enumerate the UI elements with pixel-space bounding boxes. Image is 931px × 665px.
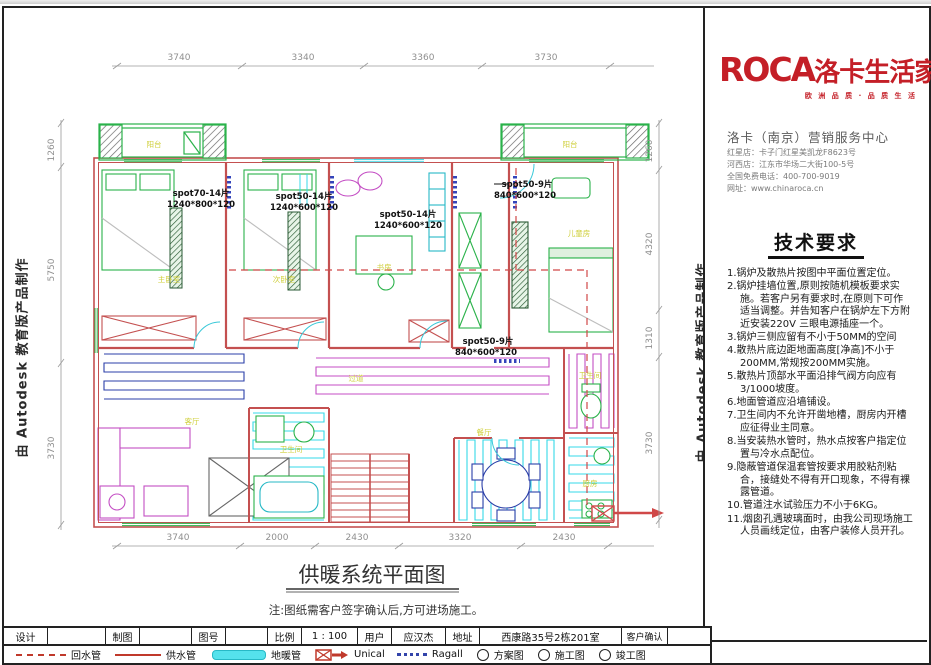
svg-text:1310: 1310: [645, 326, 655, 349]
sheet-no-value: [226, 628, 268, 644]
design-label: 设计: [4, 628, 48, 644]
tech-item: 10.管道注水试验压力不小于6KG。: [727, 500, 913, 512]
contact-line: 网址：www.chinaroca.cn: [727, 183, 917, 194]
svg-text:阳台: 阳台: [147, 139, 162, 149]
svg-text:spot70-14片: spot70-14片: [173, 188, 230, 199]
svg-text:840*600*120: 840*600*120: [455, 348, 517, 358]
tech-requirements: 技术要求 1.锅炉及散热片按图中平面位置定位。 2.锅炉挂墙位置,原则按随机模板…: [715, 228, 917, 539]
address-value: 西康路35号2栋201室: [480, 628, 622, 644]
svg-text:阳台: 阳台: [563, 139, 578, 149]
customer-confirm-value: [668, 628, 710, 644]
scale-label: 比例: [268, 628, 302, 644]
scheme-radio-circle: [477, 649, 489, 661]
draft-label: 制图: [106, 628, 140, 644]
legend-scheme-drawing: 方案图: [469, 647, 530, 662]
plan-title: 供暖系统平面图: [299, 563, 446, 587]
floor-heating-pipe-sample: [212, 650, 266, 660]
svg-text:3730: 3730: [645, 431, 655, 454]
right-panel: ROCA洛卡生活家 欧 洲 品 质 · 品 质 生 活 洛卡（南京）营销服务中心…: [703, 8, 927, 642]
completion-radio-circle: [599, 649, 611, 661]
tech-item: 9.隐蔽管道保温套管按要求用胶粘剂粘合，接缝处不得有开口现象，不得有裸露管道。: [727, 462, 913, 499]
svg-text:spot50-9片: spot50-9片: [463, 336, 514, 347]
svg-text:1260: 1260: [47, 138, 57, 161]
svg-text:1240*800*120: 1240*800*120: [167, 200, 235, 210]
svg-text:3740: 3740: [168, 53, 191, 63]
autodesk-watermark-icon: 由 Autodesk 教育版产品制作: [12, 233, 31, 483]
svg-text:1240*600*120: 1240*600*120: [374, 221, 442, 231]
svg-text:2000: 2000: [266, 533, 289, 543]
tech-requirements-list: 1.锅炉及散热片按图中平面位置定位。 2.锅炉挂墙位置,原则按随机模板要求实施。…: [715, 268, 917, 539]
staircase: [331, 454, 409, 522]
tech-requirements-title: 技术要求: [768, 228, 864, 259]
tech-item: 1.锅炉及散热片按图中平面位置定位。: [727, 268, 913, 280]
legend-return-pipe: 回水管: [4, 647, 107, 662]
tech-item: 5.散热片顶部水平面沿排气阀方向应有3/1000坡度。: [727, 371, 913, 396]
service-center-name: 洛卡（南京）营销服务中心: [727, 127, 917, 146]
svg-text:1260: 1260: [645, 139, 655, 162]
svg-text:1240*600*120: 1240*600*120: [270, 203, 338, 213]
svg-text:主卧室: 主卧室: [158, 274, 181, 284]
contact-block: 洛卡（南京）营销服务中心 红星店：卡子门红星美凯龙F8623号 河西店：江东市华…: [727, 127, 917, 194]
roca-logo: ROCA洛卡生活家: [719, 50, 917, 89]
floor-plan: 3740 3340 3360 3730 3740 2000 2430 3320 …: [4, 8, 707, 626]
tech-item: 6.地面管道应沿墙铺设。: [727, 397, 913, 409]
svg-text:餐厅: 餐厅: [477, 428, 492, 437]
svg-text:spot50-14片: spot50-14片: [380, 209, 437, 220]
tech-item: 3.锅炉三侧应留有不小于50MM的空间: [727, 332, 913, 344]
design-value: [48, 628, 106, 644]
drawing-title-block: 供暖系统平面图 注:图纸需客户签字确认后,方可进场施工。: [269, 563, 484, 617]
svg-text:3340: 3340: [292, 53, 315, 63]
supply-pipe-sample: [115, 654, 161, 656]
legend-ragall: Ragall: [391, 649, 469, 660]
svg-text:840*600*120: 840*600*120: [494, 191, 556, 201]
contact-line: 河西店：江东市华场二大街100-5号: [727, 159, 917, 170]
plan-note: 注:图纸需客户签字确认后,方可进场施工。: [269, 603, 484, 617]
contact-line: 红星店：卡子门红星美凯龙F8623号: [727, 147, 917, 158]
ragall-sample: [397, 653, 427, 656]
svg-text:2430: 2430: [346, 533, 369, 543]
scale-value: 1 : 100: [302, 628, 358, 644]
window-top-edge: [0, 0, 931, 4]
legend-floor-heating-pipe: 地暖管: [202, 647, 307, 662]
tech-item: 8.当安装热水管时，热水点按客户指定位置与冷水点配位。: [727, 436, 913, 461]
svg-text:3740: 3740: [167, 533, 190, 543]
legend-completion-drawing: 竣工图: [591, 647, 652, 662]
brand-block: ROCA洛卡生活家 欧 洲 品 质 · 品 质 生 活: [719, 50, 917, 101]
svg-text:过道: 过道: [349, 373, 364, 383]
construction-radio-circle: [538, 649, 550, 661]
svg-text:厨房: 厨房: [583, 478, 598, 488]
address-label: 地址: [446, 628, 480, 644]
roca-logo-latin: ROCA: [719, 50, 814, 89]
screen: ✕: [0, 0, 931, 665]
return-pipe-sample: [16, 654, 66, 656]
svg-text:客厅: 客厅: [185, 416, 200, 426]
svg-text:儿童房: 儿童房: [568, 228, 591, 238]
unical-icon: [315, 649, 349, 661]
svg-text:5750: 5750: [47, 258, 57, 281]
legend-row: 回水管 供水管 地暖管 Unical: [4, 646, 712, 663]
draft-value: [140, 628, 192, 644]
tech-item: 7.卫生间内不允许开凿地槽，厨房内开槽应征得业主同意。: [727, 410, 913, 435]
svg-text:3320: 3320: [449, 533, 472, 543]
roca-logo-cn: 洛卡生活家: [814, 58, 931, 88]
legend-construction-drawing: 施工图: [530, 647, 591, 662]
svg-text:3360: 3360: [412, 53, 435, 63]
contact-line: 全国免费电话：400-700-9019: [727, 171, 917, 182]
svg-text:4320: 4320: [645, 232, 655, 255]
svg-text:3730: 3730: [535, 53, 558, 63]
title-block-table: 设计 制图 图号 比例 1 : 100 用户 应汉杰 地址 西康路35号2栋20…: [4, 626, 712, 646]
customer-confirm-label: 客户确认: [622, 628, 668, 644]
sheet-no-label: 图号: [192, 628, 226, 644]
tech-item: 11.烟囱孔遇玻璃面时，由我公司现场施工人员画线定位，由客户装修人员开孔。: [727, 514, 913, 539]
svg-text:书房: 书房: [377, 262, 392, 272]
user-value: 应汉杰: [392, 628, 446, 644]
tech-item: 4.散热片底边距地面高度[净高]不小于200MM,常规按200MM实施。: [727, 345, 913, 370]
svg-text:卫生间: 卫生间: [579, 370, 602, 380]
svg-text:2430: 2430: [553, 533, 576, 543]
svg-text:spot50-9片: spot50-9片: [502, 179, 553, 190]
legend-unical: Unical: [307, 649, 391, 661]
svg-text:spot50-14片: spot50-14片: [276, 191, 333, 202]
svg-text:次卧室: 次卧室: [273, 274, 296, 284]
svg-text:卫生间: 卫生间: [280, 444, 303, 454]
legend-supply-pipe: 供水管: [107, 647, 202, 662]
tech-item: 2.锅炉挂墙位置,原则按随机模板要求实施。若客户另有要求时,在原则下可作适当调整…: [727, 281, 913, 331]
drawing-sheet: 3740 3340 3360 3730 3740 2000 2430 3320 …: [2, 6, 931, 665]
user-label: 用户: [358, 628, 392, 644]
svg-text:3730: 3730: [47, 436, 57, 459]
brand-tagline: 欧 洲 品 质 · 品 质 生 活: [719, 91, 917, 101]
